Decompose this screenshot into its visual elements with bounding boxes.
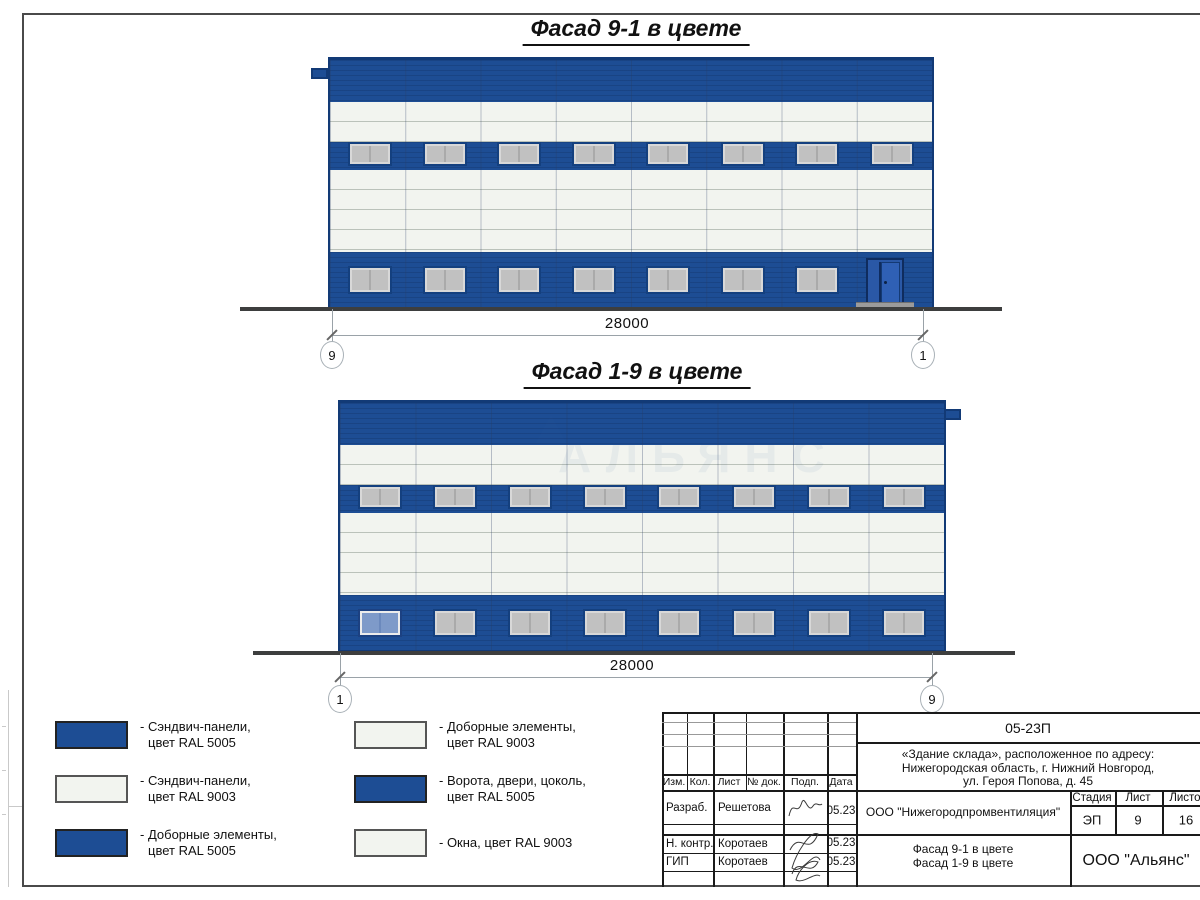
window [497, 142, 541, 166]
stage-value: ЭП [1083, 813, 1102, 828]
window [348, 266, 392, 294]
window-glass [437, 489, 473, 505]
rule-line [8, 690, 9, 887]
legend-swatch [354, 721, 427, 749]
legend-swatch [55, 829, 128, 857]
window [795, 142, 839, 166]
window [433, 609, 477, 637]
project-code: 05-23П [1005, 720, 1051, 736]
project-address-line3: ул. Героя Попова, д. 45 [963, 774, 1093, 788]
rule-line [1115, 790, 1117, 834]
window-glass [576, 270, 612, 290]
window-glass [650, 270, 686, 290]
rule-line [662, 871, 856, 872]
facade1-axis-bubble-left: 9 [320, 341, 344, 369]
window [657, 485, 701, 509]
facade2-ground-line [253, 651, 1015, 655]
dimension-line [332, 335, 923, 336]
rule-line [1070, 805, 1200, 807]
window-glass [427, 146, 463, 162]
sheets-label: Листов [1169, 792, 1200, 804]
window-glass [352, 270, 388, 290]
window [583, 485, 627, 509]
rule-line [8, 806, 22, 807]
facade2-dimension-label: 28000 [610, 657, 654, 674]
window-glass [437, 613, 473, 633]
rule-line [662, 712, 1200, 714]
rule-line [662, 712, 664, 887]
window [807, 609, 851, 637]
rule-line [22, 13, 1200, 15]
col-header-podp: Подп. [791, 776, 819, 788]
row-role: Разраб. [666, 802, 707, 814]
legend-swatch [55, 775, 128, 803]
window-glass [362, 489, 398, 505]
facade1-entrance-door [866, 258, 904, 307]
design-organization: ООО "Нижегородпромвентиляция" [866, 805, 1060, 819]
window [795, 266, 839, 294]
window-glass [576, 146, 612, 162]
facade1-axis-bubble-right: 1 [911, 341, 935, 369]
project-address-line2: Нижегородская область, г. Нижний Новгоро… [902, 761, 1154, 775]
legend-item: - Сэндвич-панели,цвет RAL 9003 [55, 762, 354, 816]
window-glass [886, 613, 922, 633]
window [423, 142, 467, 166]
signature-razrab [786, 794, 824, 822]
window-glass [512, 489, 548, 505]
sheets-value: 16 [1179, 813, 1193, 828]
window-glass [736, 489, 772, 505]
rule-line [713, 712, 715, 887]
customer-company: ООО "Альянс" [1083, 852, 1190, 870]
window [721, 266, 765, 294]
legend-item: - Сэндвич-панели,цвет RAL 5005 [55, 708, 354, 762]
window [358, 609, 402, 637]
signature-kontr-gip [784, 828, 826, 882]
facade2-upper-window-row [340, 485, 944, 509]
legend-swatch [354, 829, 427, 857]
facade1-upper-window-row [330, 142, 932, 166]
window-glass [725, 146, 761, 162]
row-name: Коротаев [718, 838, 768, 850]
row-role: ГИП [666, 856, 689, 868]
extension-line [340, 653, 341, 686]
door-side-panel [870, 262, 881, 303]
window-glass [587, 613, 623, 633]
legend-label: - Сэндвич-панели,цвет RAL 5005 [140, 719, 251, 751]
window [508, 609, 552, 637]
window [870, 142, 914, 166]
col-header-izm: Изм. [663, 776, 686, 788]
legend-label: - Доборные элементы,цвет RAL 5005 [140, 827, 277, 859]
rule-line [856, 712, 858, 887]
window-glass [362, 613, 398, 633]
rule-line [662, 746, 856, 747]
rule-line [2, 726, 6, 727]
facade2-title: Фасад 1-9 в цвете [524, 358, 751, 389]
rule-line [662, 834, 1200, 836]
window [732, 485, 776, 509]
legend-label: - Доборные элементы,цвет RAL 9003 [439, 719, 576, 751]
window [646, 142, 690, 166]
facade1-building [328, 57, 934, 309]
window [423, 266, 467, 294]
drawing-sheet: Фасад 9-1 в цвете 28000 9 1 Фасад 1-9 в … [0, 0, 1200, 900]
sheet-value: 9 [1134, 813, 1141, 828]
sheet-label: Лист [1126, 792, 1151, 804]
window [646, 266, 690, 294]
project-address-line1: «Здание склада», расположенное по адресу… [902, 747, 1154, 761]
legend-label: - Ворота, двери, цоколь,цвет RAL 5005 [439, 773, 586, 805]
watermark-text: АЛЬЯНС [558, 429, 839, 483]
extension-line [932, 653, 933, 686]
window-glass [650, 146, 686, 162]
window [583, 609, 627, 637]
facade2-lower-window-row [340, 609, 944, 637]
legend-label: - Сэндвич-панели,цвет RAL 9003 [140, 773, 251, 805]
legend-item: - Окна, цвет RAL 9003 [354, 816, 640, 870]
window-glass [661, 489, 697, 505]
window-glass [811, 489, 847, 505]
rule-line [856, 742, 1200, 744]
window [882, 609, 926, 637]
row-role: Н. контр. [666, 838, 713, 850]
sheet-title-line1: Фасад 9-1 в цвете [913, 842, 1014, 856]
col-header-kol: Кол. [690, 776, 711, 788]
legend-item: - Ворота, двери, цоколь,цвет RAL 5005 [354, 762, 640, 816]
window [348, 142, 392, 166]
window [732, 609, 776, 637]
legend-label: - Окна, цвет RAL 9003 [439, 835, 572, 851]
window-glass [587, 489, 623, 505]
dimension-line [340, 677, 932, 678]
legend-item: - Доборные элементы,цвет RAL 5005 [55, 816, 354, 870]
rule-line [2, 770, 6, 771]
window [497, 266, 541, 294]
rule-line [662, 722, 856, 723]
window-glass [725, 270, 761, 290]
window [572, 266, 616, 294]
facade1-ground-line [240, 307, 1002, 311]
facade1-gutter-outlet [311, 68, 328, 79]
rule-line [662, 824, 856, 825]
window [657, 609, 701, 637]
row-date: 05.23 [827, 805, 856, 817]
rule-line [662, 790, 1200, 792]
window-glass [512, 613, 548, 633]
window-glass [501, 146, 537, 162]
sheet-title-line2: Фасад 1-9 в цвете [913, 856, 1014, 870]
window [882, 485, 926, 509]
rule-line [687, 712, 688, 790]
col-header-doc: № док. [747, 776, 781, 788]
rule-line [2, 814, 6, 815]
facade1-dimension-label: 28000 [605, 315, 649, 332]
window-glass [811, 613, 847, 633]
rule-line [22, 885, 1200, 887]
window [433, 485, 477, 509]
facade1-title: Фасад 9-1 в цвете [523, 15, 750, 46]
window [807, 485, 851, 509]
col-header-list: Лист [718, 776, 741, 788]
window-glass [874, 146, 910, 162]
facade2-building: АЛЬЯНС [338, 400, 946, 652]
window [508, 485, 552, 509]
row-date: 05.23 [827, 837, 856, 849]
legend-swatch [55, 721, 128, 749]
rule-line [662, 853, 856, 854]
window-glass [799, 146, 835, 162]
window-glass [352, 146, 388, 162]
rule-line [22, 13, 24, 887]
row-date: 05.23 [827, 856, 856, 868]
stage-label: Стадия [1072, 792, 1111, 804]
facade2-gutter-outlet [944, 409, 961, 420]
door-leaf [881, 262, 900, 303]
window [358, 485, 402, 509]
facade1-lower-window-row [330, 266, 932, 294]
window-glass [501, 270, 537, 290]
row-name: Решетова [718, 802, 771, 814]
col-header-data: Дата [829, 776, 852, 788]
rule-line [1162, 790, 1164, 834]
window-glass [661, 613, 697, 633]
facade2-axis-bubble-right: 9 [920, 685, 944, 713]
window-glass [736, 613, 772, 633]
window-glass [886, 489, 922, 505]
rule-line [662, 734, 856, 735]
window [721, 142, 765, 166]
legend-item: - Доборные элементы,цвет RAL 9003 [354, 708, 640, 762]
extension-line [332, 309, 333, 342]
legend: - Сэндвич-панели,цвет RAL 5005 - Доборны… [55, 708, 640, 870]
window [572, 142, 616, 166]
window-glass [799, 270, 835, 290]
row-name: Коротаев [718, 856, 768, 868]
legend-swatch [354, 775, 427, 803]
window-glass [427, 270, 463, 290]
extension-line [923, 309, 924, 342]
